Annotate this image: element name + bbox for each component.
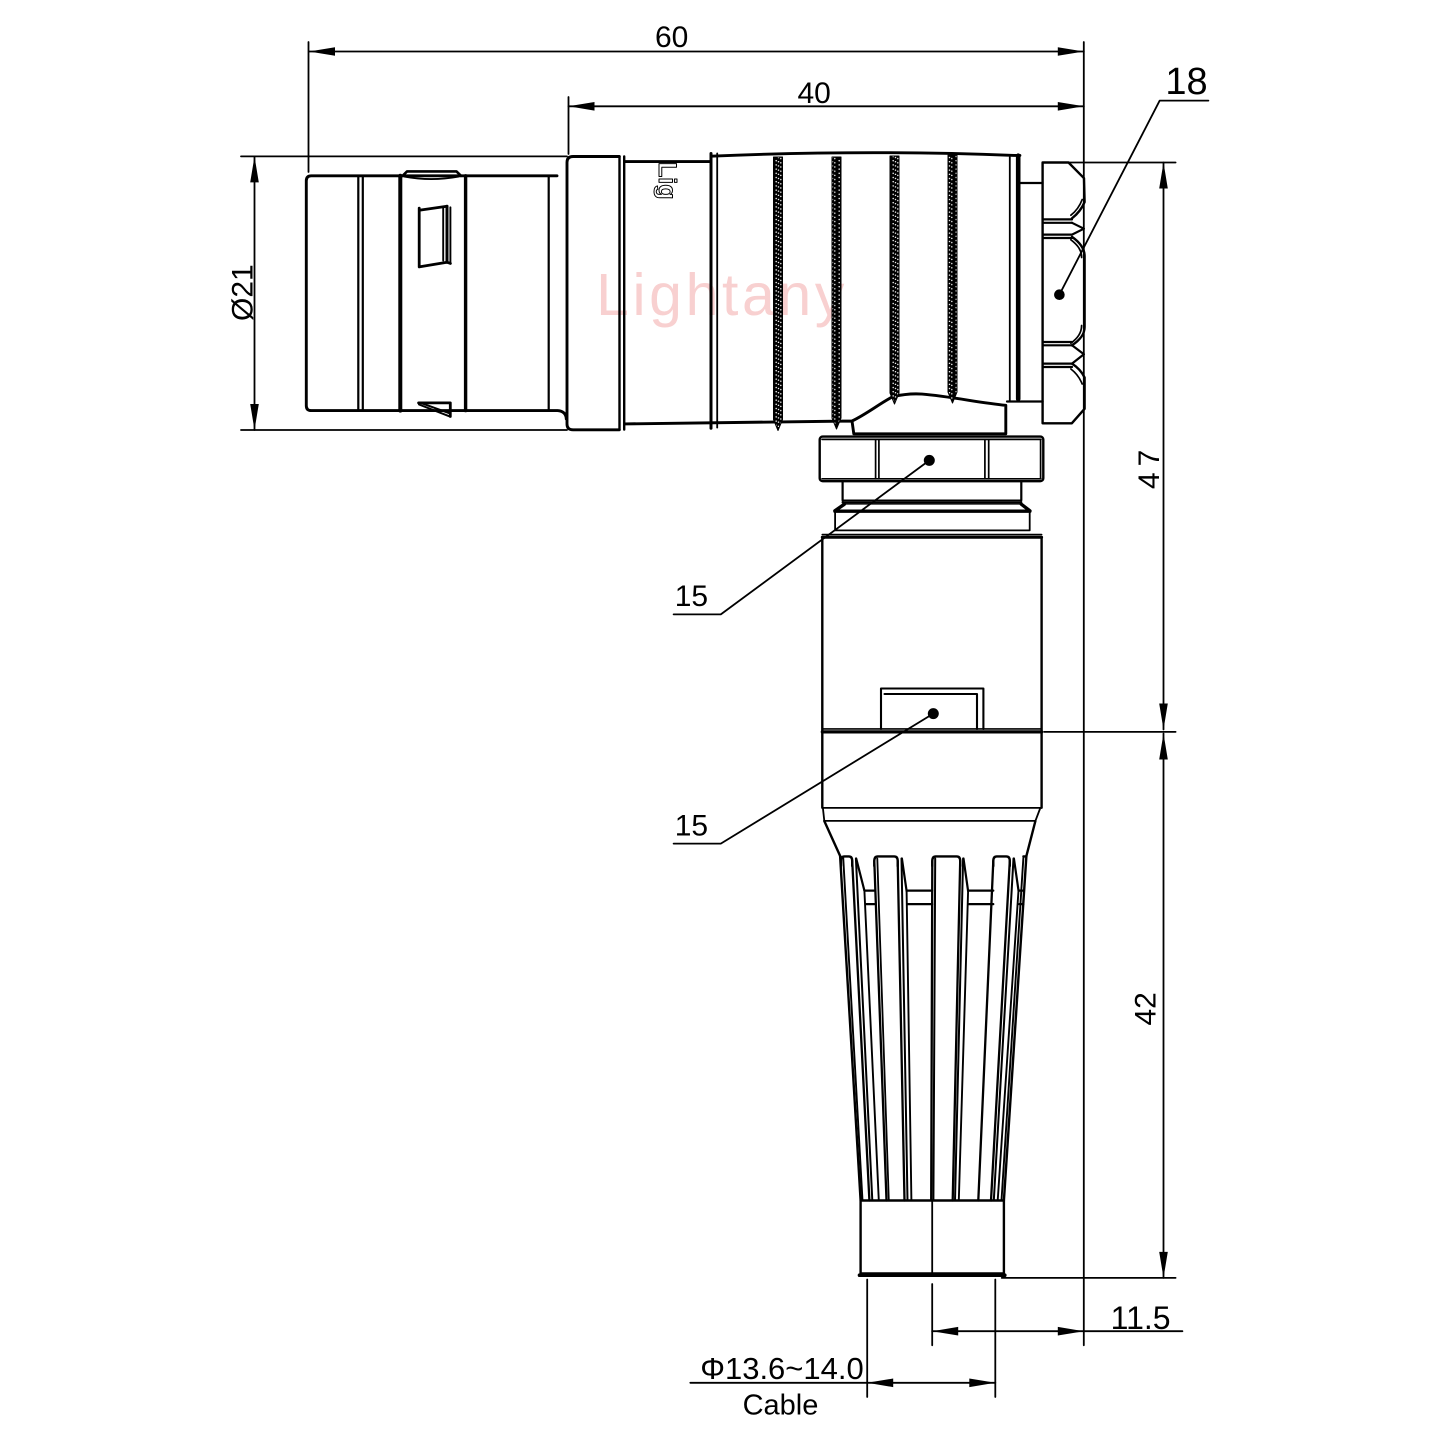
svg-text:60: 60 — [655, 21, 688, 54]
svg-text:Ø21: Ø21 — [227, 264, 260, 321]
svg-text:47: 47 — [1133, 444, 1166, 489]
svg-text:Lig: Lig — [653, 162, 681, 200]
svg-text:15: 15 — [675, 580, 708, 613]
svg-text:18: 18 — [1165, 61, 1207, 103]
svg-text:11.5: 11.5 — [1111, 1300, 1171, 1336]
svg-text:42: 42 — [1130, 992, 1163, 1025]
svg-text:Lightany: Lightany — [596, 262, 848, 328]
svg-text:Cable: Cable — [743, 1390, 819, 1422]
svg-text:15: 15 — [675, 809, 708, 842]
svg-text:Φ13.6~14.0: Φ13.6~14.0 — [700, 1351, 864, 1386]
svg-text:40: 40 — [798, 77, 831, 110]
